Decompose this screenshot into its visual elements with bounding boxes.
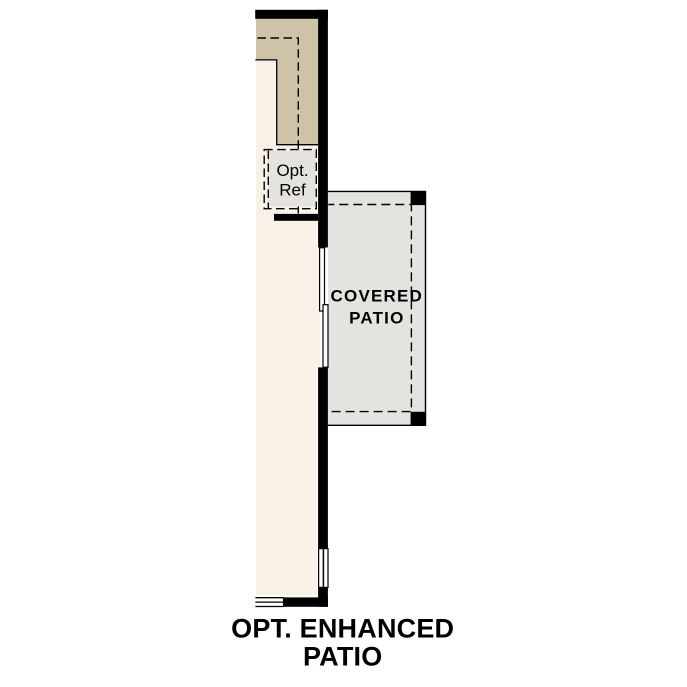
svg-text:OPT. ENHANCED: OPT. ENHANCED (231, 614, 454, 644)
svg-text:PATIO: PATIO (349, 309, 404, 328)
svg-text:Ref: Ref (279, 180, 306, 199)
svg-text:PATIO: PATIO (303, 641, 383, 671)
svg-text:Opt.: Opt. (276, 161, 308, 180)
svg-text:COVERED: COVERED (331, 287, 423, 306)
